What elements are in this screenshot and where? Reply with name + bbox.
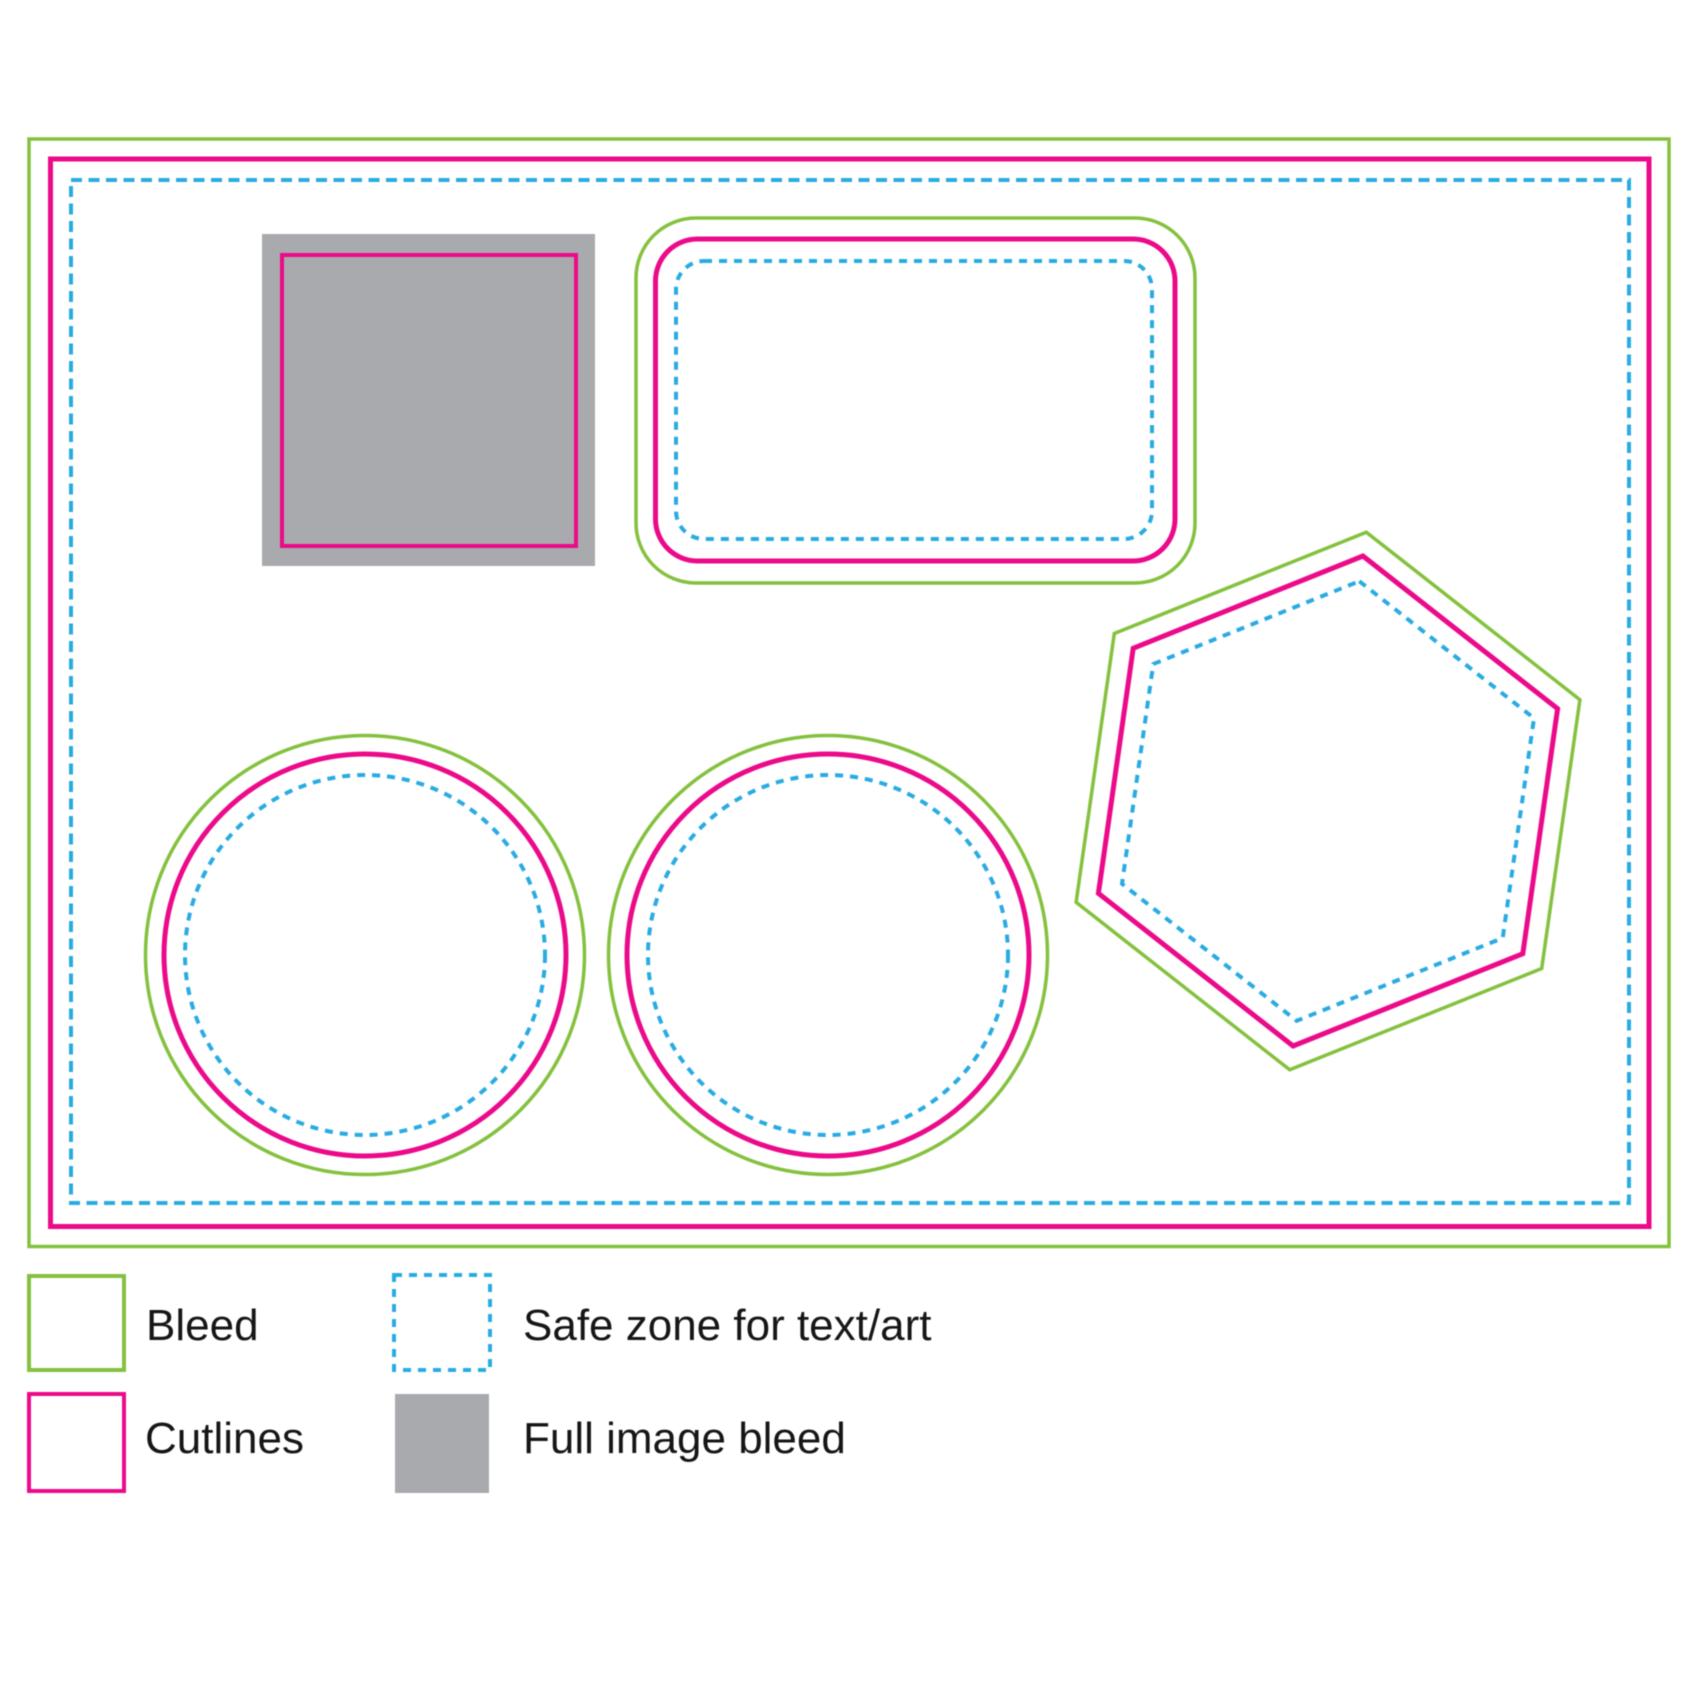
- svg-text:Bleed: Bleed: [146, 1301, 259, 1350]
- svg-text:Safe zone for text/art: Safe zone for text/art: [523, 1301, 931, 1350]
- svg-text:Full image bleed: Full image bleed: [523, 1414, 846, 1463]
- svg-text:Cutlines: Cutlines: [145, 1414, 304, 1463]
